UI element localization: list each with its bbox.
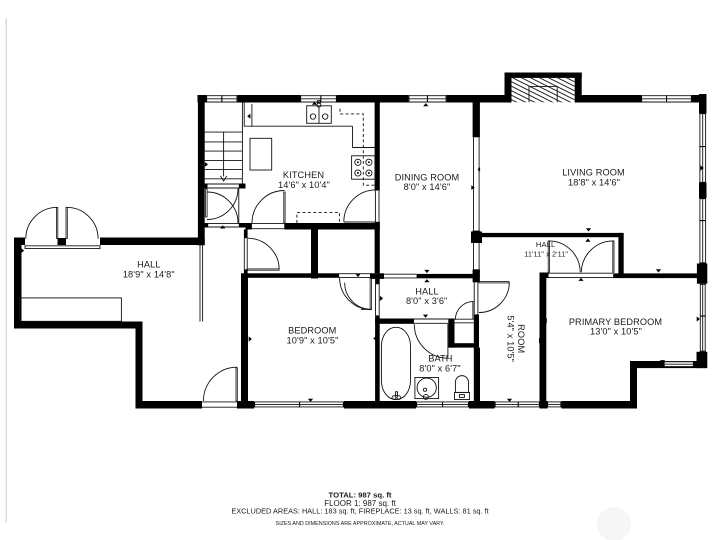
svg-text:DINING ROOM: DINING ROOM xyxy=(395,173,460,183)
svg-text:14'6" x 10'4": 14'6" x 10'4" xyxy=(278,180,330,190)
svg-text:8'0" x 6'7": 8'0" x 6'7" xyxy=(419,364,461,374)
svg-text:13'0" x 10'5": 13'0" x 10'5" xyxy=(590,327,642,337)
svg-text:18'9" x 14'8": 18'9" x 14'8" xyxy=(123,270,175,280)
svg-text:HALL: HALL xyxy=(137,259,160,269)
svg-text:TOTAL: 987 sq. ft: TOTAL: 987 sq. ft xyxy=(329,490,392,499)
svg-text:PRIMARY BEDROOM: PRIMARY BEDROOM xyxy=(569,317,662,327)
svg-text:SIZES AND DIMENSIONS ARE APPRO: SIZES AND DIMENSIONS ARE APPROXIMATE, AC… xyxy=(276,521,445,527)
svg-text:BEDROOM: BEDROOM xyxy=(288,326,336,336)
svg-text:KITCHEN: KITCHEN xyxy=(283,170,324,180)
svg-text:18'8" x 14'6": 18'8" x 14'6" xyxy=(568,177,620,187)
svg-text:ROOM: ROOM xyxy=(516,324,526,353)
svg-text:LIVING ROOM: LIVING ROOM xyxy=(562,167,625,177)
svg-text:HALL: HALL xyxy=(536,240,555,249)
svg-text:5'4" x 10'5": 5'4" x 10'5" xyxy=(506,315,516,362)
svg-text:11'11" x 2'11": 11'11" x 2'11" xyxy=(524,249,568,258)
svg-text:10'9" x 10'5": 10'9" x 10'5" xyxy=(287,336,339,346)
svg-text:BATH: BATH xyxy=(428,353,452,363)
svg-text:EXCLUDED AREAS: HALL: 183 sq.: EXCLUDED AREAS: HALL: 183 sq. ft, FIREPL… xyxy=(231,507,488,516)
svg-text:8'0" x 3'6": 8'0" x 3'6" xyxy=(406,296,448,306)
svg-text:8'0" x 14'6": 8'0" x 14'6" xyxy=(404,182,451,192)
